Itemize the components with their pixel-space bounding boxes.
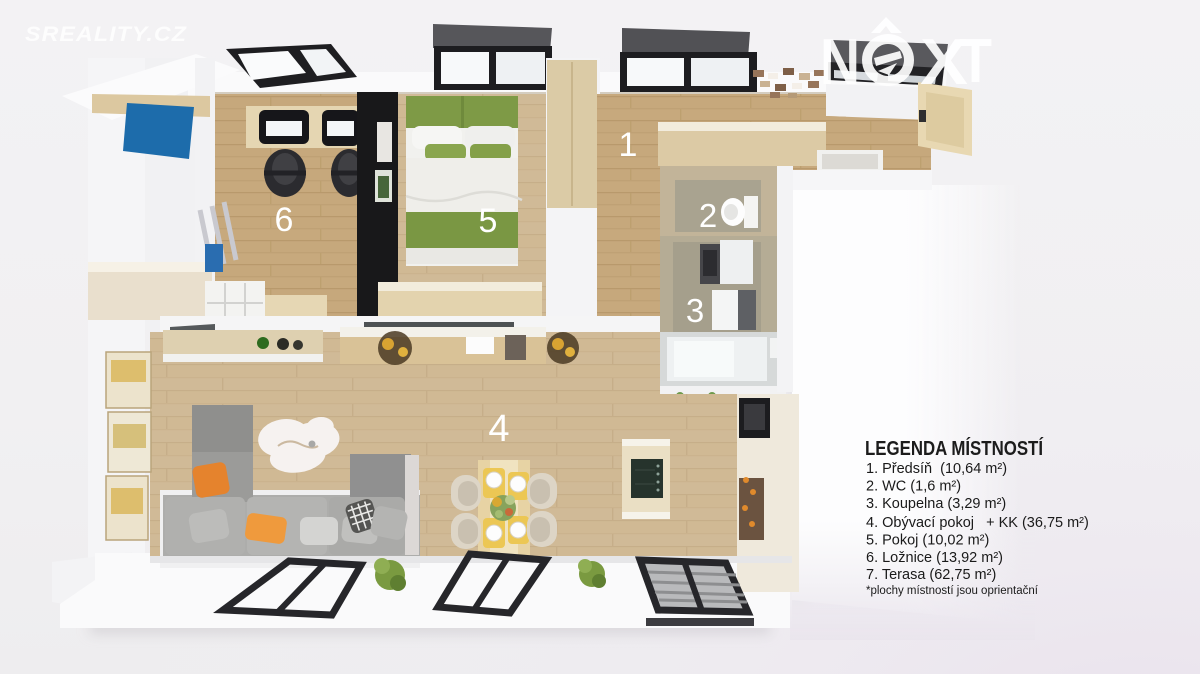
svg-text:3. Koupelna (3,29 m²): 3. Koupelna (3,29 m²): [866, 496, 1006, 512]
svg-text:T: T: [959, 27, 992, 96]
svg-text:3: 3: [686, 292, 704, 329]
svg-text:6. Ložnice (13,92 m²): 6. Ložnice (13,92 m²): [866, 550, 1003, 566]
svg-text:6: 6: [275, 201, 294, 239]
svg-text:7. Terasa (62,75 m²): 7. Terasa (62,75 m²): [866, 567, 996, 583]
svg-text:N: N: [820, 25, 860, 98]
svg-text:4. Obývací pokoj + KK (36,75: 4. Obývací pokoj + KK (36,75 m²): [866, 515, 1089, 531]
svg-text:2: 2: [699, 197, 717, 234]
svg-text:*plochy místností jsou oprient: *plochy místností jsou oprientační: [866, 585, 1039, 597]
svg-text:4: 4: [488, 408, 509, 450]
svg-text:1: 1: [619, 126, 638, 164]
svg-text:5. Pokoj (10,02 m²): 5. Pokoj (10,02 m²): [866, 533, 989, 549]
svg-text:LEGENDA MÍSTNOSTÍ: LEGENDA MÍSTNOSTÍ: [865, 437, 1043, 460]
svg-text:1. Předsíň (10,64 m²): 1. Předsíň (10,64 m²): [866, 461, 1007, 477]
svg-text:5: 5: [479, 202, 498, 240]
svg-text:2. WC (1,6 m²): 2. WC (1,6 m²): [866, 479, 961, 495]
svg-text:SREALITY.CZ: SREALITY.CZ: [25, 23, 187, 46]
